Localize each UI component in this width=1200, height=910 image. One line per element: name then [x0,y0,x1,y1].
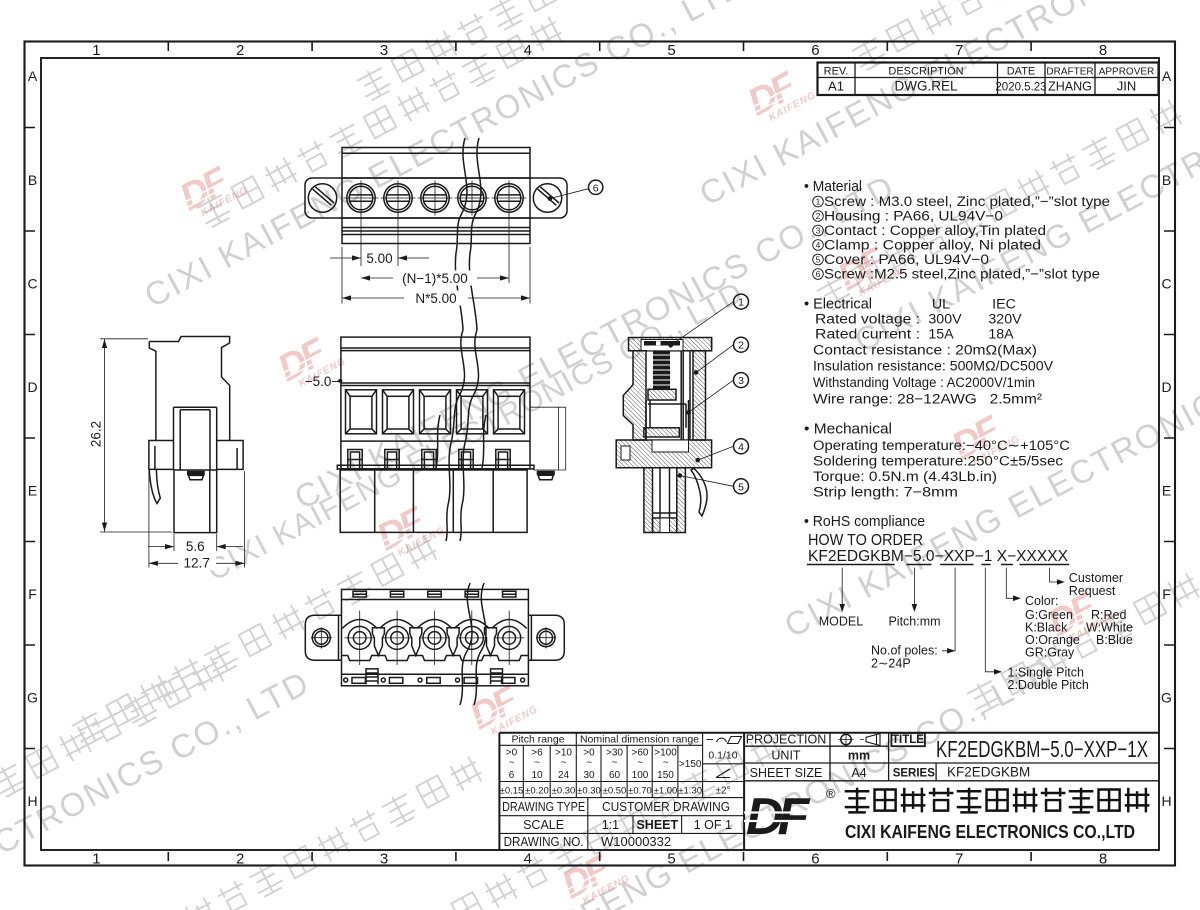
svg-text:12.7: 12.7 [184,556,210,571]
svg-text:6: 6 [816,269,821,279]
svg-text:320V: 320V [988,312,1022,328]
svg-text:F: F [28,586,37,602]
svg-text:10: 10 [531,770,543,781]
svg-text:G: G [1161,690,1172,706]
svg-text:APPROVER: APPROVER [1099,67,1155,78]
svg-text:7: 7 [955,42,963,59]
svg-text:~: ~ [663,758,669,769]
svg-text:Customer: Customer [1069,571,1123,585]
svg-text:2: 2 [236,42,244,59]
svg-text:B: B [28,172,37,188]
svg-text:GR:Gray: GR:Gray [1025,646,1075,660]
svg-text:®: ® [826,786,836,801]
svg-text:4: 4 [524,851,532,868]
svg-text:2020.5.23: 2020.5.23 [995,82,1046,94]
svg-text:300V: 300V [928,312,962,328]
svg-text:1: 1 [92,42,100,59]
svg-text:150: 150 [657,770,674,781]
svg-text:SERIES: SERIES [893,768,936,780]
svg-text:DESCRIPTION: DESCRIPTION [888,66,963,78]
svg-text:C: C [1161,276,1171,292]
svg-text:6: 6 [811,42,819,59]
svg-text:8: 8 [1099,851,1107,868]
svg-text:60: 60 [609,770,621,781]
svg-text:3: 3 [380,42,388,59]
svg-text:CUSTOMER DRAWING: CUSTOMER DRAWING [602,800,730,814]
svg-text:Strip length: 7−8mm: Strip length: 7−8mm [813,485,958,501]
svg-text:1: 1 [738,297,744,309]
svg-text:MODEL: MODEL [819,615,864,629]
svg-text:4: 4 [524,42,532,59]
svg-text:18A: 18A [988,327,1014,343]
svg-text:HOW TO ORDER: HOW TO ORDER [808,532,923,549]
svg-text:H: H [1161,793,1171,809]
svg-text:1: 1 [816,197,821,207]
svg-text:A4: A4 [851,766,866,780]
svg-text:A: A [1162,68,1172,84]
svg-text:±0.50: ±0.50 [603,786,627,797]
svg-text:CIXI KAIFENG ELECTRONICS CO.,L: CIXI KAIFENG ELECTRONICS CO.,LTD [845,821,1135,842]
svg-text:SHEET: SHEET [636,818,678,832]
svg-text:±0.30: ±0.30 [577,786,601,797]
svg-text:PROJECTION: PROJECTION [746,733,827,747]
svg-text:4: 4 [816,240,821,250]
svg-text:• Material: • Material [804,179,862,195]
svg-text:DF: DF [746,788,811,846]
svg-text:5.6: 5.6 [186,539,205,554]
svg-text:~: ~ [612,758,618,769]
svg-text:IEC: IEC [992,297,1016,313]
svg-text:±2°: ±2° [715,786,730,797]
svg-text:100: 100 [632,770,649,781]
svg-text:1 OF 1: 1 OF 1 [694,818,732,832]
svg-text:Wire range: 28−12AWG 2.5mm²: Wire range: 28−12AWG 2.5mm² [813,392,1042,408]
svg-text:5: 5 [738,481,744,493]
svg-text:D: D [27,379,37,395]
svg-text:mm: mm [848,749,870,763]
svg-text:15A: 15A [928,327,954,343]
svg-text:E: E [28,483,37,499]
svg-text:26.2: 26.2 [89,421,104,447]
svg-text:A: A [28,68,38,84]
svg-text:5: 5 [667,42,675,59]
svg-text:2:Double Pitch: 2:Double Pitch [1008,678,1089,692]
svg-text:~: ~ [637,758,643,769]
svg-text:C: C [27,276,37,292]
svg-text:KF2EDGKBM−5.0−XXP−1 X−XXXXX: KF2EDGKBM−5.0−XXP−1 X−XXXXX [808,548,1069,565]
svg-text:D: D [1161,379,1171,395]
svg-text:0.1/10: 0.1/10 [708,750,737,762]
svg-text:• RoHS compliance: • RoHS compliance [804,514,925,530]
svg-text:~: ~ [509,758,515,769]
svg-text:H: H [27,793,37,809]
svg-text:Nominal dimension range: Nominal dimension range [580,734,699,746]
svg-text:2: 2 [816,211,821,221]
svg-text:Operating temperature:−40°C∼+1: Operating temperature:−40°C∼+105°C [813,438,1070,454]
svg-text:(N−1)*5.00: (N−1)*5.00 [402,271,468,286]
svg-text:6: 6 [811,851,819,868]
svg-text:±1.30: ±1.30 [678,786,702,797]
svg-text:8: 8 [1099,42,1107,59]
svg-text:G: G [27,690,38,706]
svg-text:A1: A1 [828,79,844,94]
svg-text:Color:: Color: [1025,594,1058,608]
svg-text:±1.00: ±1.00 [654,786,678,797]
svg-text:• Mechanical: • Mechanical [804,422,892,438]
svg-text:3: 3 [738,375,744,387]
svg-text:F: F [1162,586,1171,602]
svg-text:5: 5 [816,255,821,265]
svg-text:5.00: 5.00 [366,251,392,266]
svg-text:~: ~ [586,758,592,769]
svg-text:±0.30: ±0.30 [552,786,576,797]
svg-text:W10000332: W10000332 [601,834,671,849]
svg-text:JIN: JIN [1117,79,1137,94]
svg-text:B:Blue: B:Blue [1096,633,1133,647]
svg-text:1:1: 1:1 [602,818,619,832]
svg-text:REV.: REV. [824,66,849,78]
svg-text:Withstanding Voltage : AC2000V: Withstanding Voltage : AC2000V/1min [813,375,1035,391]
svg-text:SHEET SIZE: SHEET SIZE [750,766,823,780]
svg-text:±0.20: ±0.20 [525,786,549,797]
svg-text:Request: Request [1069,584,1116,598]
svg-text:DRAFTER: DRAFTER [1046,67,1093,78]
svg-text:~: ~ [534,758,540,769]
svg-text:DWG.REL: DWG.REL [894,79,957,94]
svg-text:DRAWING NO.: DRAWING NO. [504,835,584,849]
svg-text:>150: >150 [679,759,702,770]
svg-text:3: 3 [380,851,388,868]
svg-text:4: 4 [738,441,744,453]
svg-text:DRAWING TYPE: DRAWING TYPE [502,800,585,814]
svg-text:UL: UL [932,297,950,313]
svg-text:2: 2 [738,340,744,352]
svg-text:Screw :M2.5 steel,Zinc plated,: Screw :M2.5 steel,Zinc plated,”−”slot ty… [824,267,1100,283]
svg-text:SCALE: SCALE [523,818,564,832]
svg-text:2∼24P: 2∼24P [871,657,911,671]
svg-text:7: 7 [955,851,963,868]
svg-text:KF2EDGKBM−5.0−XXP−1X: KF2EDGKBM−5.0−XXP−1X [936,736,1148,762]
svg-text:Pitch range: Pitch range [511,734,564,746]
svg-text:N*5.00: N*5.00 [415,291,456,306]
svg-text:TITLE: TITLE [892,734,924,746]
svg-text:Contact resistance : 20mΩ(Max): Contact resistance : 20mΩ(Max) [813,343,1037,359]
svg-text:Insulation resistance: 500MΩ/D: Insulation resistance: 500MΩ/DC500V [813,359,1054,375]
svg-text:3: 3 [816,226,821,236]
svg-text:±0.15: ±0.15 [500,786,524,797]
svg-text:24: 24 [558,770,570,781]
svg-text:UNIT: UNIT [771,749,801,763]
svg-text:KF2EDGKBM: KF2EDGKBM [947,765,1030,780]
svg-text:E: E [1162,483,1171,499]
svg-text:−5.0−: −5.0− [305,374,340,389]
svg-text:~: ~ [561,758,567,769]
svg-text:±0.70: ±0.70 [628,786,652,797]
svg-text:2: 2 [236,851,244,868]
svg-text:Pitch:mm: Pitch:mm [888,615,940,629]
svg-text:6: 6 [593,182,599,194]
svg-text:Rated current :: Rated current : [815,327,920,343]
svg-text:5: 5 [667,851,675,868]
svg-text:DATE: DATE [1007,66,1036,78]
svg-text:30: 30 [583,770,595,781]
svg-text:ZHANG: ZHANG [1048,80,1092,94]
svg-text:1: 1 [92,851,100,868]
svg-text:Soldering temperature:250°C±5/: Soldering temperature:250°C±5/5sec [813,454,1063,470]
svg-text:Torque: 0.5N.m (4.43Lb.in): Torque: 0.5N.m (4.43Lb.in) [813,469,997,485]
svg-text:No.of poles:: No.of poles: [871,644,938,658]
svg-text:• Electrical: • Electrical [804,297,872,313]
svg-text:B: B [1162,172,1171,188]
svg-text:6: 6 [509,770,515,781]
svg-text:Rated voltage :: Rated voltage : [815,312,920,328]
